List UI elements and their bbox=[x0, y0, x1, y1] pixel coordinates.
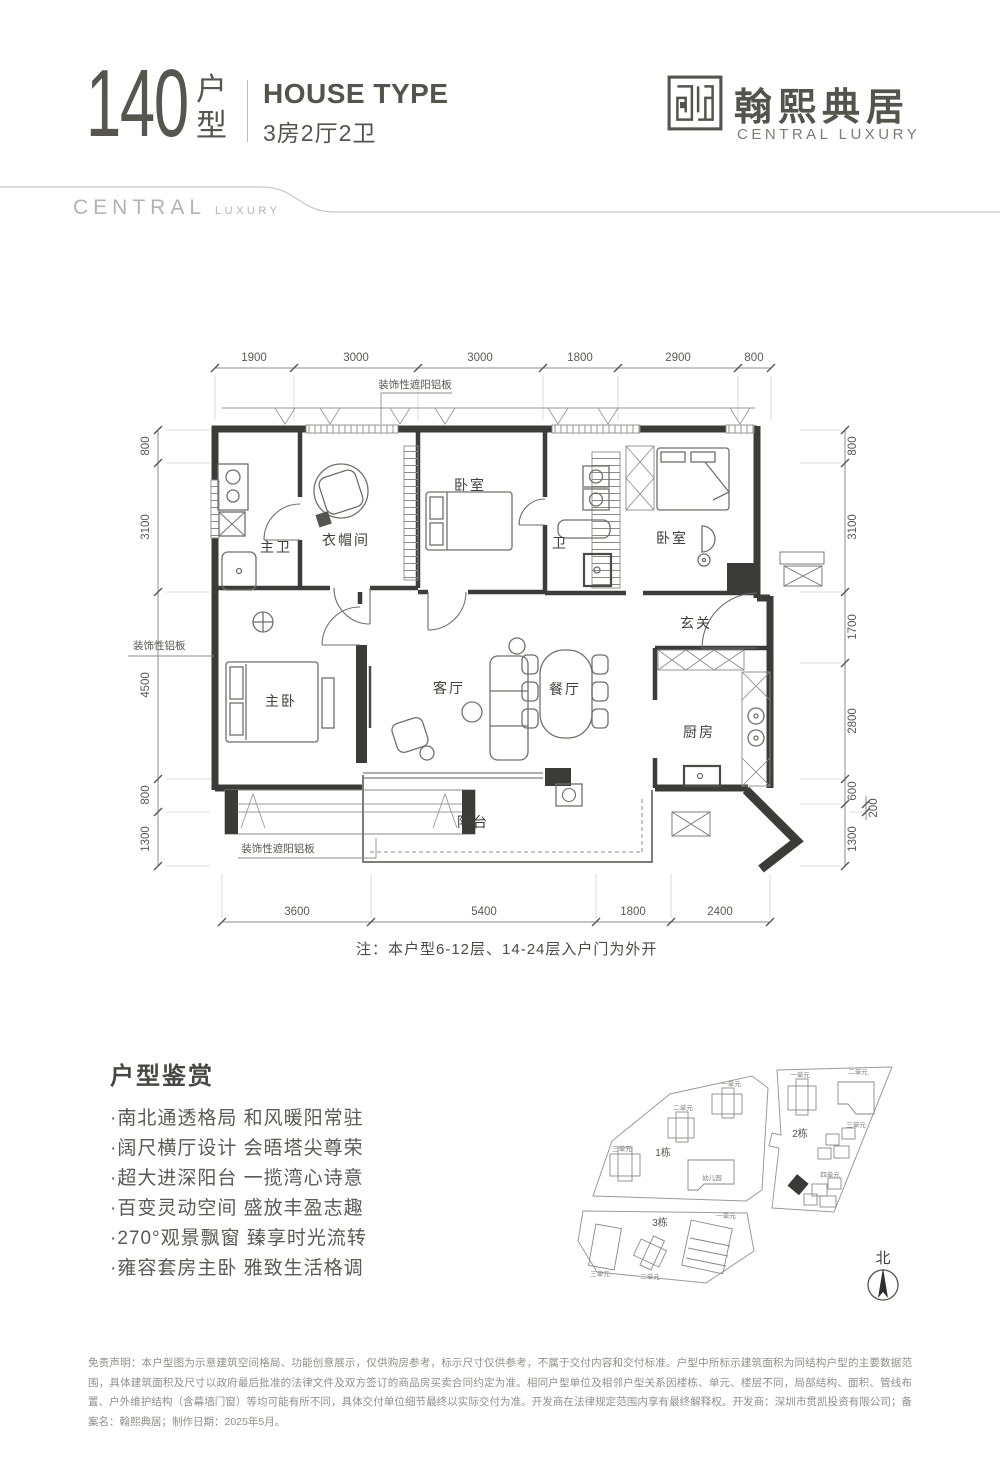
dim-top-2: 3000 bbox=[467, 352, 493, 364]
building-1-label: 1栋 bbox=[655, 1146, 671, 1159]
room-bedroom1: 卧室 bbox=[454, 477, 486, 493]
annotation-bottom: 装饰性遮阳铝板 bbox=[241, 842, 315, 855]
feature-item: ·超大进深阳台 一揽湾心诗意 bbox=[110, 1164, 367, 1194]
dim-bottom-0: 3600 bbox=[284, 906, 310, 918]
site-plan: 1栋 三单元 二单元 一单元 幼儿园 2栋 一单元 二单元 三单元 四单元 3栋… bbox=[555, 1040, 955, 1315]
room-master-bedroom: 主卧 bbox=[265, 693, 297, 709]
dim-right-5: 200 bbox=[868, 798, 880, 817]
watermark-sub: LUXURY bbox=[215, 205, 280, 217]
flyer-page: 140 户 型 HOUSE TYPE 3房2厅2卫 翰熙典居 CENTRAL L… bbox=[0, 0, 1000, 1463]
dim-right-6: 1300 bbox=[847, 826, 859, 852]
dim-top-4: 2900 bbox=[665, 352, 691, 364]
p2-unit4: 四单元 bbox=[820, 1170, 840, 1179]
feature-item: ·270°观景飘窗 臻享时光流转 bbox=[110, 1224, 367, 1254]
room-balcony: 阳台 bbox=[457, 814, 489, 830]
feature-item: ·雍容套房主卧 雅致生活格调 bbox=[110, 1254, 367, 1284]
dim-bottom-2: 1800 bbox=[620, 906, 646, 918]
p1-unit2: 二单元 bbox=[673, 1103, 693, 1112]
dim-left-2: 4500 bbox=[140, 672, 152, 698]
dim-right-3: 2800 bbox=[847, 708, 859, 734]
dim-left-0: 800 bbox=[140, 436, 152, 455]
dim-top-0: 1900 bbox=[241, 352, 267, 364]
dim-left-1: 3100 bbox=[140, 514, 152, 540]
p2-unit3: 三单元 bbox=[846, 1120, 866, 1129]
feature-item: ·南北通透格局 和风暖阳常驻 bbox=[110, 1104, 367, 1134]
dim-bottom-1: 5400 bbox=[471, 906, 497, 918]
p1-kindergarten: 幼儿园 bbox=[702, 1173, 722, 1182]
room-labels: 主卫 衣帽间 卧室 卫 卧室 玄关 主卧 客厅 餐厅 厨房 阳台 bbox=[260, 477, 715, 830]
bay-window bbox=[225, 790, 475, 834]
room-bedroom2: 卧室 bbox=[656, 530, 688, 546]
room-kitchen: 厨房 bbox=[683, 724, 715, 740]
p1-unit3: 三单元 bbox=[612, 1144, 632, 1153]
dim-right-4: 600 bbox=[847, 781, 859, 800]
parapet-casement-marks bbox=[222, 408, 755, 424]
media-wall bbox=[356, 645, 367, 763]
p1-unit1: 一单元 bbox=[721, 1079, 741, 1088]
storage-hatches bbox=[404, 446, 770, 786]
features-title: 户型鉴赏 bbox=[110, 1056, 214, 1091]
room-bath: 卫 bbox=[552, 535, 568, 551]
annotation-top: 装饰性遮阳铝板 bbox=[378, 378, 452, 391]
wall-block bbox=[545, 768, 571, 786]
brand-watermark: CENTRALLUXURY bbox=[73, 196, 280, 220]
dim-right-0: 800 bbox=[847, 436, 859, 455]
dim-right-1: 3100 bbox=[847, 514, 859, 540]
room-cloak: 衣帽间 bbox=[322, 532, 370, 548]
annotation-left: 装饰性铝板 bbox=[133, 639, 186, 652]
p2-unit2: 二单元 bbox=[848, 1067, 868, 1076]
feature-item: ·百变灵动空间 盛放丰盈志趣 bbox=[110, 1194, 367, 1224]
features-list: ·南北通透格局 和风暖阳常驻 ·阔尺横厅设计 会晤塔尖尊荣 ·超大进深阳台 一揽… bbox=[110, 1104, 367, 1284]
p3-unit2: 二单元 bbox=[640, 1272, 660, 1281]
dimension-ticks bbox=[154, 364, 870, 926]
watermark-main: CENTRAL bbox=[73, 196, 206, 219]
room-dining: 餐厅 bbox=[549, 681, 581, 697]
north-arrow-icon: 北 bbox=[868, 1250, 898, 1300]
p3-unit1: 一单元 bbox=[716, 1211, 736, 1220]
feature-item: ·阔尺横厅设计 会晤塔尖尊荣 bbox=[110, 1134, 367, 1164]
highlighted-unit-marker bbox=[787, 1174, 808, 1195]
dim-top-1: 3000 bbox=[343, 352, 369, 364]
room-foyer: 玄关 bbox=[680, 615, 712, 631]
north-label: 北 bbox=[875, 1250, 890, 1267]
floor-plan: 1900 3000 3000 1800 2900 800 3600 5400 1… bbox=[80, 330, 920, 950]
parcel-outlines bbox=[578, 1067, 892, 1283]
dim-right-2: 1700 bbox=[847, 614, 859, 640]
building-3-label: 3栋 bbox=[652, 1216, 668, 1229]
dim-left-3: 800 bbox=[140, 785, 152, 804]
building-2-label: 2栋 bbox=[792, 1127, 808, 1140]
room-living: 客厅 bbox=[433, 680, 465, 696]
shaft-block bbox=[727, 563, 757, 595]
room-master-bath: 主卫 bbox=[260, 539, 292, 555]
p2-unit1: 一单元 bbox=[790, 1070, 810, 1079]
dim-top-3: 1800 bbox=[567, 352, 593, 364]
disclaimer-text: 免责声明：本户型图为示意建筑空间格局、功能创意展示，仅供购房参考，标示尺寸仅供参… bbox=[88, 1354, 912, 1432]
plan-note: 注：本户型6-12层、14-24层入户门为外开 bbox=[356, 938, 657, 959]
dim-bottom-3: 2400 bbox=[707, 906, 733, 918]
dim-left-4: 1300 bbox=[140, 826, 152, 852]
dim-top-5: 800 bbox=[744, 352, 763, 364]
p3-unit3: 三单元 bbox=[590, 1269, 610, 1278]
